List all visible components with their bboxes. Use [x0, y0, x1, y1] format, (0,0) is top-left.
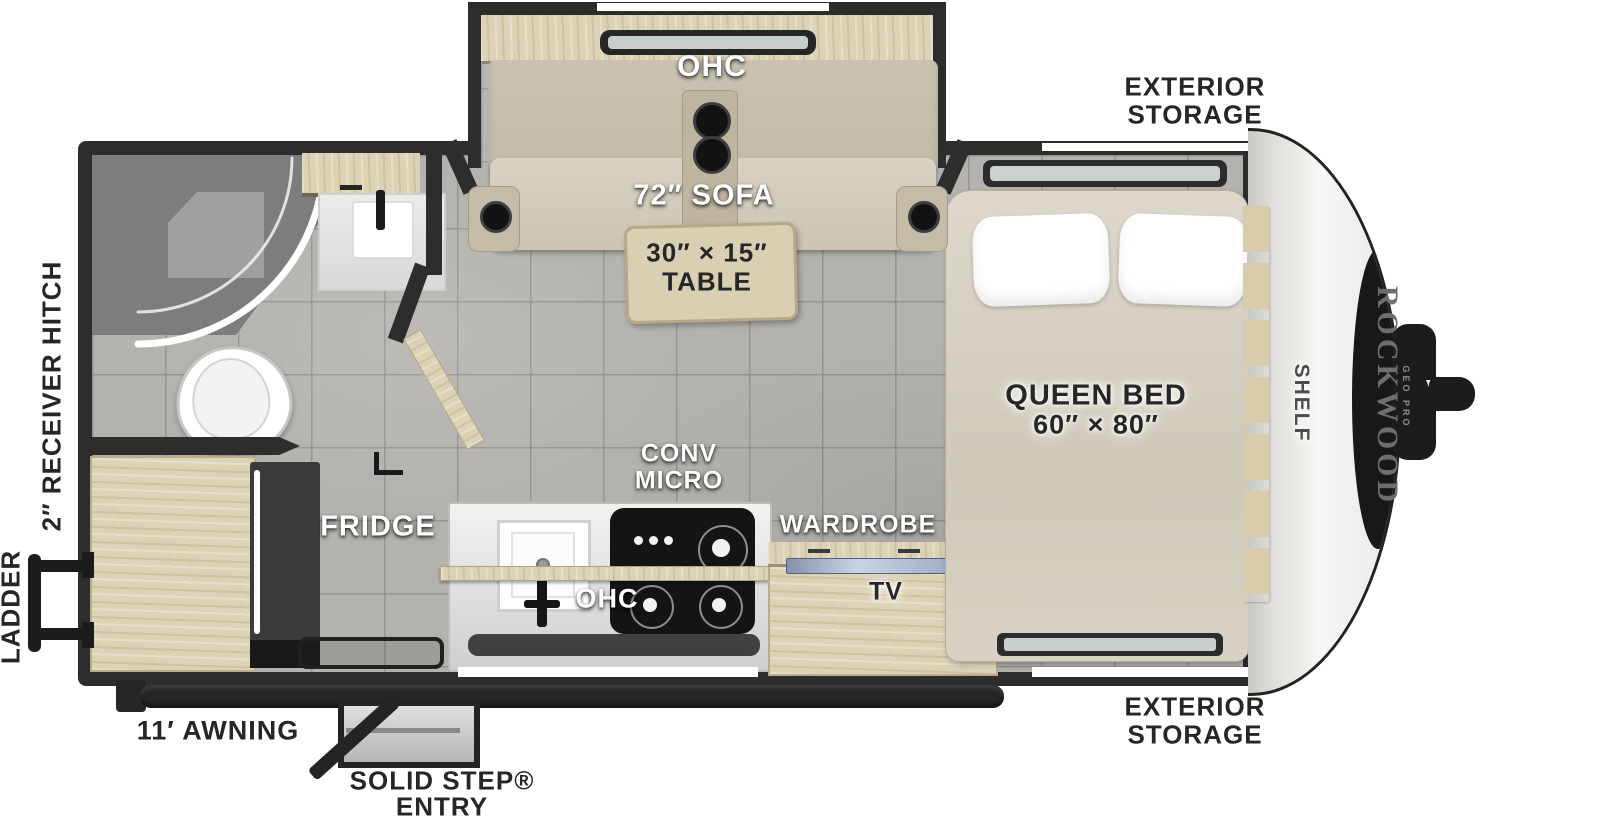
label-exterior-storage-top-2: STORAGE — [1127, 100, 1262, 131]
top-wall-window-strip — [1042, 143, 1252, 151]
door-handle-icon — [374, 452, 403, 475]
window-bed-bottom-glass — [1004, 638, 1216, 651]
armrest-cupholder-right — [908, 201, 940, 233]
label-awning: 11′ AWNING — [137, 716, 300, 747]
label-table-size: 30″ × 15″ — [646, 238, 767, 269]
brand-model: GEO PRO — [1401, 365, 1411, 428]
label-entry: ENTRY — [396, 792, 488, 818]
ladder-mount-bottom — [82, 622, 94, 648]
label-slide-ohc: OHC — [677, 50, 747, 84]
label-micro: MICRO — [635, 467, 723, 496]
fridge-door-seal — [254, 470, 260, 634]
vanity-upper-cabinet — [302, 153, 420, 197]
pillow-right — [1117, 213, 1248, 307]
awning-roller — [140, 685, 1004, 708]
bottom-wall-window-strip-bed — [1032, 667, 1254, 677]
label-fridge: FRIDGE — [320, 511, 436, 544]
vanity-faucet-icon — [376, 190, 385, 230]
burner-small-right-center — [712, 598, 726, 612]
cooktop-knob-dot-2 — [649, 536, 658, 545]
cooktop-knob-dot-1 — [634, 536, 643, 545]
ladder-mount-top — [82, 552, 94, 578]
label-conv: CONV — [641, 440, 717, 469]
floorplan-canvas: OHC 72″ SOFA 30″ × 15″ TABLE EXTERIOR ST… — [0, 0, 1600, 818]
label-kitchen-ohc: OHC — [576, 584, 639, 615]
wardrobe-handle-1 — [808, 549, 830, 553]
counter-toekick — [468, 634, 760, 656]
label-exterior-storage-bottom-2: STORAGE — [1127, 720, 1262, 751]
slide-ohc-window-glass — [608, 36, 808, 49]
cooktop-knob-dot-3 — [664, 536, 673, 545]
kitchen-ohc-cabinet-bar — [440, 566, 772, 581]
tv-screen — [786, 558, 964, 574]
bathroom-bottom-wall — [92, 437, 300, 455]
cupholder-icon-2 — [693, 136, 731, 174]
label-queen-bed: QUEEN BED — [1005, 380, 1186, 413]
kitchen-faucet-handle — [524, 600, 560, 608]
bathroom-right-wall — [426, 153, 442, 275]
fridge — [250, 462, 320, 644]
label-shelf: SHELF — [1289, 364, 1313, 443]
rivet-dot-top — [1348, 167, 1354, 173]
rivet-dot-bottom — [1348, 649, 1354, 655]
burner-large-center — [712, 539, 730, 557]
label-table: TABLE — [662, 267, 752, 298]
rear-wardrobe-cabinet — [90, 456, 256, 672]
label-ladder: LADDER — [0, 550, 27, 664]
label-sofa: 72″ SOFA — [633, 180, 774, 213]
vanity-handle — [340, 185, 362, 190]
label-receiver-hitch: 2″ RECEIVER HITCH — [37, 261, 68, 532]
armrest-cupholder-left — [480, 201, 512, 233]
label-queen-bed-size: 60″ × 80″ — [1033, 410, 1159, 441]
entry-mat — [298, 637, 444, 669]
pillow-left — [971, 213, 1110, 308]
window-over-bed-glass — [990, 166, 1220, 181]
bottom-wall-window-strip-kitchen — [458, 667, 758, 677]
shelf-strips — [1243, 206, 1269, 602]
hitch-drawbar — [1429, 377, 1475, 411]
label-tv: TV — [869, 578, 903, 607]
cupholder-icon-1 — [693, 102, 731, 140]
brand-logo: ROCKWOOD — [1370, 286, 1404, 506]
label-exterior-storage-bottom-1: EXTERIOR — [1125, 692, 1266, 723]
burner-small-left-center — [643, 598, 657, 612]
label-exterior-storage-top-1: EXTERIOR — [1125, 72, 1266, 103]
slide-wall-left — [468, 2, 481, 168]
slide-window-strip — [597, 3, 829, 11]
label-wardrobe: WARDROBE — [780, 511, 937, 540]
wardrobe-handle-2 — [898, 549, 920, 553]
